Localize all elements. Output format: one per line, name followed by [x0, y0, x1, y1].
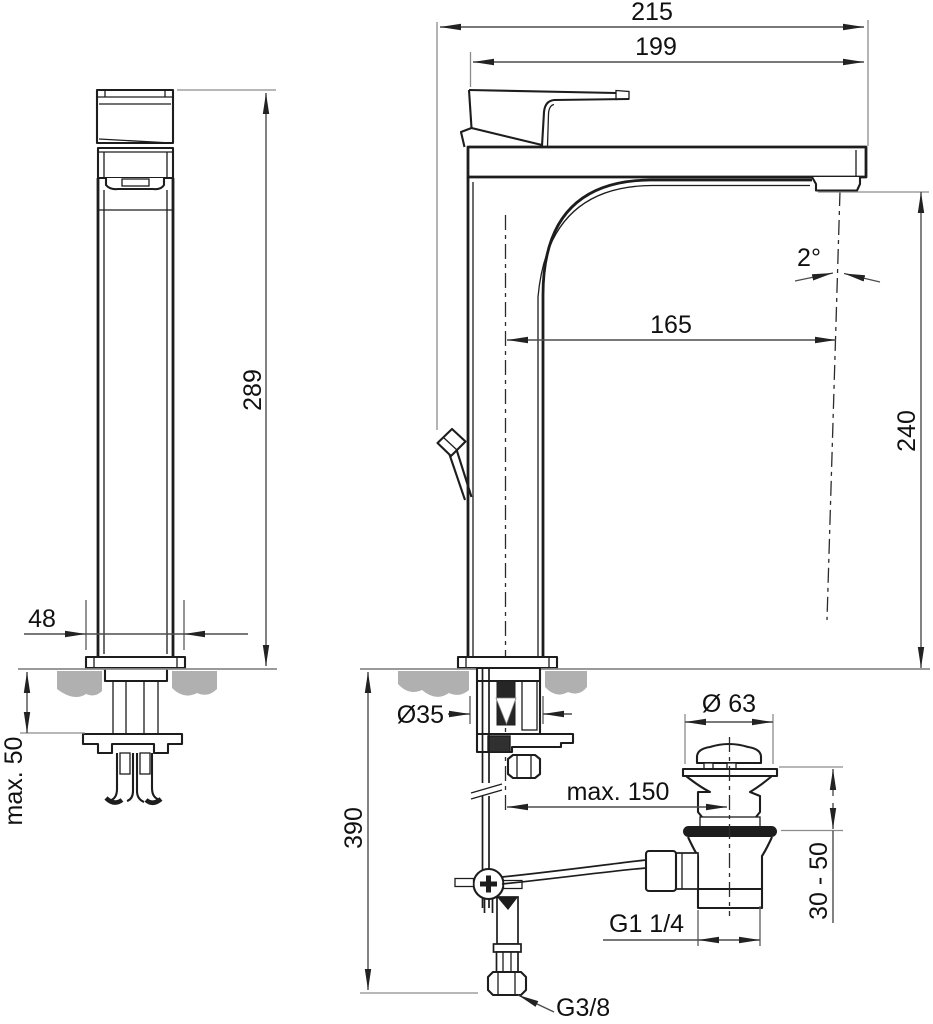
dim-label-30-50: 30 - 50 [805, 842, 833, 920]
handle-front [97, 90, 173, 143]
hose-front-left [109, 753, 117, 801]
dim-hole-diameter-35: Ø35 [397, 696, 572, 729]
dim-label-165: 165 [650, 311, 692, 339]
faucet-dimension-drawing: 215 199 289 48 max. 50 [0, 0, 933, 1024]
dim-base-width-48: 48 [24, 600, 248, 650]
counter-side [360, 669, 930, 697]
dim-label-g114: G1 1/4 [609, 910, 684, 938]
dim-total-height-289: 289 [177, 90, 276, 666]
dim-label-289: 289 [239, 369, 267, 411]
column-front [98, 178, 173, 656]
spout-front [98, 148, 173, 189]
dim-label-48: 48 [28, 605, 56, 633]
dim-label-240: 240 [893, 410, 921, 452]
dim-total-depth-215: 215 [437, 0, 868, 430]
dim-body-depth-199: 199 [471, 33, 865, 87]
fixing-front [83, 681, 182, 803]
g38-nut [488, 972, 526, 995]
dim-label-199: 199 [635, 33, 677, 61]
base-plate-side [458, 657, 557, 668]
dim-label-max150: max. 150 [567, 778, 670, 806]
dim-label-2deg: 2° [797, 244, 821, 272]
dim-label-g38: G3/8 [556, 994, 610, 1022]
dim-label-dia35: Ø35 [397, 701, 444, 729]
dim-label-max50: max. 50 [0, 737, 28, 826]
dim-label-390: 390 [340, 807, 368, 849]
handle-side [461, 90, 629, 147]
pull-rod-knob [438, 429, 472, 500]
dim-label-dia63: Ø 63 [702, 690, 756, 718]
dim-basin-thickness-30-50: 30 - 50 [779, 767, 843, 923]
supply-hose [488, 897, 526, 995]
spout-outlet [812, 177, 860, 191]
front-view [18, 90, 277, 803]
water-stream-centerline [827, 191, 840, 620]
waste-assembly [646, 737, 777, 916]
clamp-plate-front [83, 734, 182, 753]
hose-nut-side [508, 755, 540, 778]
rod-connector-knurled-nut [646, 851, 676, 891]
dim-supply-thread-g38: G3/8 [518, 994, 610, 1022]
dim-spout-reach-165: 165 [507, 311, 836, 340]
dim-waste-thread-g114: G1 1/4 [603, 906, 760, 946]
linkage-rod [502, 860, 646, 877]
technical-drawing-sheet: 215 199 289 48 max. 50 [0, 0, 933, 1024]
dim-label-215: 215 [631, 0, 673, 26]
dim-outlet-height-240: 240 [818, 192, 929, 668]
dim-spout-angle-2deg: 2° [795, 191, 880, 620]
